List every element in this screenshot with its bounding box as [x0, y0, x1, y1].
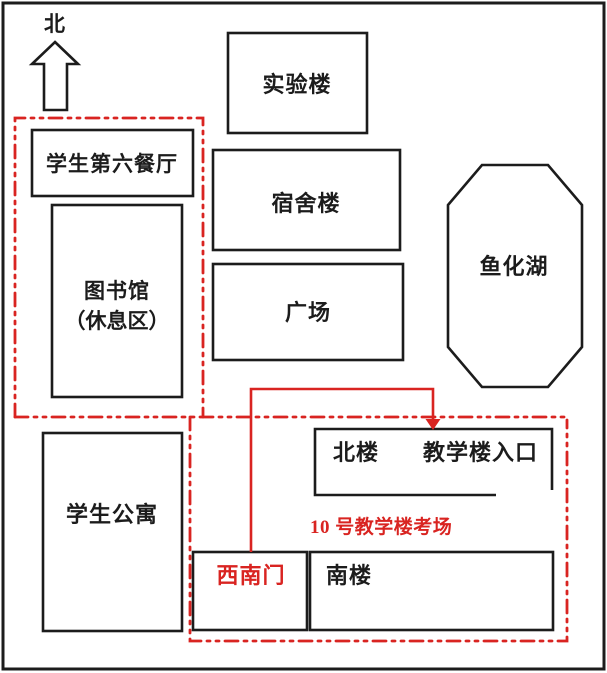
north-arrow-icon — [32, 42, 78, 110]
library-label-line1: 图书馆 — [84, 277, 150, 305]
canteen-label: 学生第六餐厅 — [46, 150, 178, 178]
campus-map: 北 实验楼 学生第六餐厅 宿舍楼 图书馆 （休息区） 广场 鱼化湖 学生公寓 北… — [0, 0, 607, 673]
south-building-label: 南楼 — [326, 561, 372, 591]
southwest-gate-label: 西南门 — [216, 561, 285, 591]
compass-north-label: 北 — [44, 10, 66, 38]
plaza-label: 广场 — [285, 298, 331, 328]
exam-site-label: 10 号教学楼考场 — [310, 515, 452, 541]
apartments-box — [43, 433, 182, 631]
lab-building-label: 实验楼 — [262, 70, 331, 100]
library-label-line2: （休息区） — [65, 307, 170, 335]
dorm-building-label: 宿舍楼 — [271, 189, 340, 219]
apartments-label: 学生公寓 — [66, 500, 158, 530]
map-canvas — [0, 0, 607, 673]
north-building-label: 北楼 — [333, 438, 379, 468]
lake-label: 鱼化湖 — [479, 252, 548, 282]
entrance-label: 教学楼入口 — [423, 438, 538, 468]
